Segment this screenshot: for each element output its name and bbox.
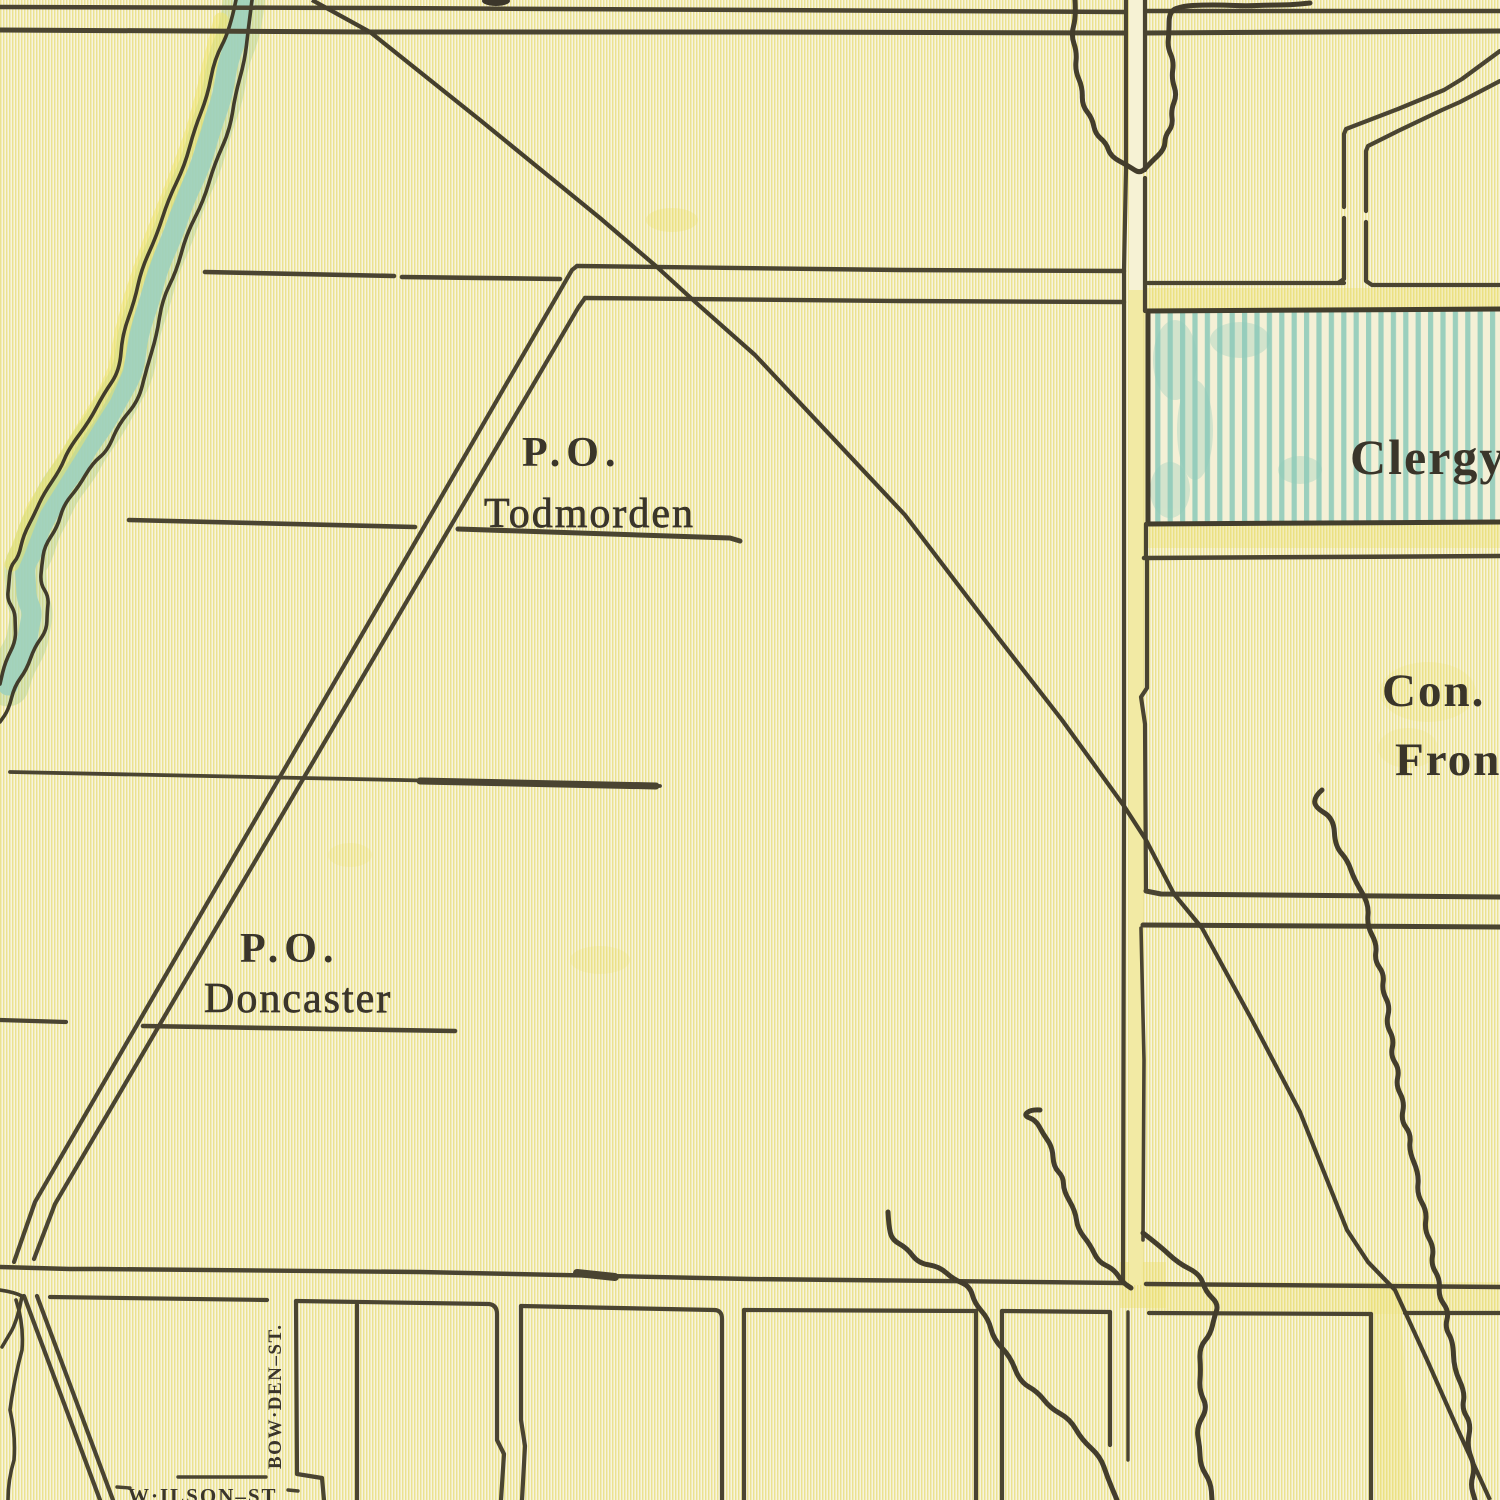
svg-text:BOW·DEN–ST.: BOW·DEN–ST. xyxy=(265,1324,286,1469)
svg-text:Con.: Con. xyxy=(1382,665,1485,717)
svg-text:Doncaster: Doncaster xyxy=(204,976,392,1022)
svg-text:W·ILSON–ST: W·ILSON–ST xyxy=(128,1484,278,1500)
svg-text:Front: Front xyxy=(1395,734,1500,786)
svg-text:Clergy: Clergy xyxy=(1350,429,1500,485)
svg-text:Todmorden: Todmorden xyxy=(484,491,695,537)
svg-text:P.O.: P.O. xyxy=(522,430,621,476)
svg-text:P.O.: P.O. xyxy=(240,926,339,972)
